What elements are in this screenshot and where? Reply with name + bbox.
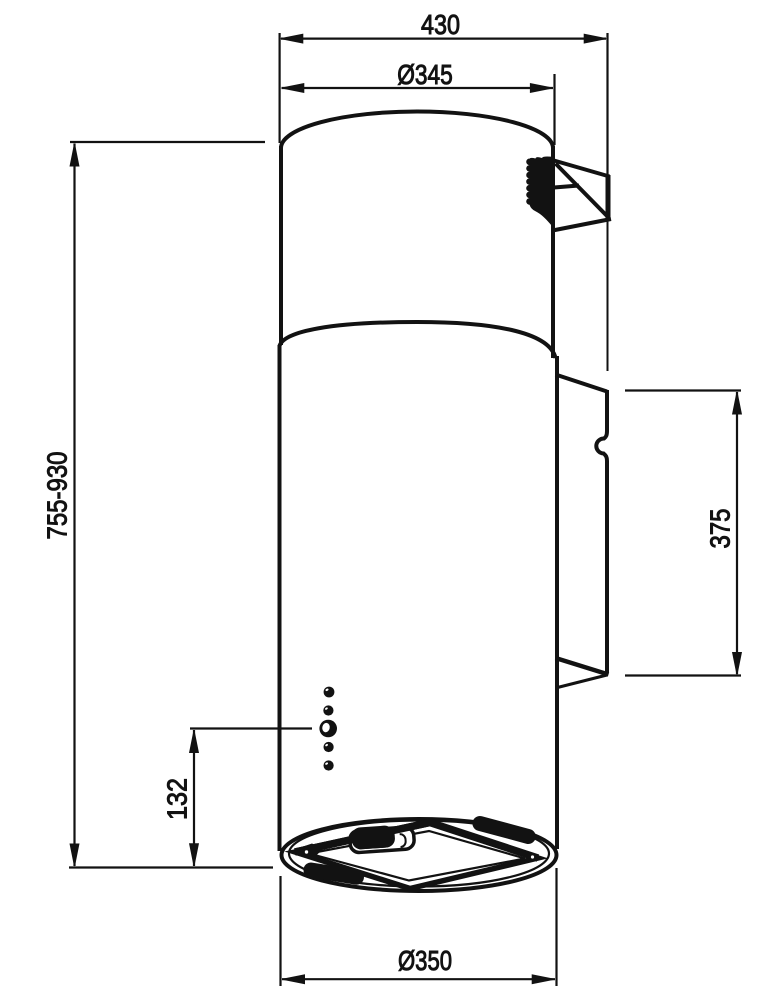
svg-text:132: 132 bbox=[162, 778, 193, 820]
svg-text:Ø345: Ø345 bbox=[397, 59, 453, 90]
svg-text:Ø350: Ø350 bbox=[398, 945, 452, 976]
svg-text:755-930: 755-930 bbox=[42, 452, 73, 540]
svg-text:375: 375 bbox=[705, 509, 736, 549]
svg-text:430: 430 bbox=[421, 9, 460, 40]
